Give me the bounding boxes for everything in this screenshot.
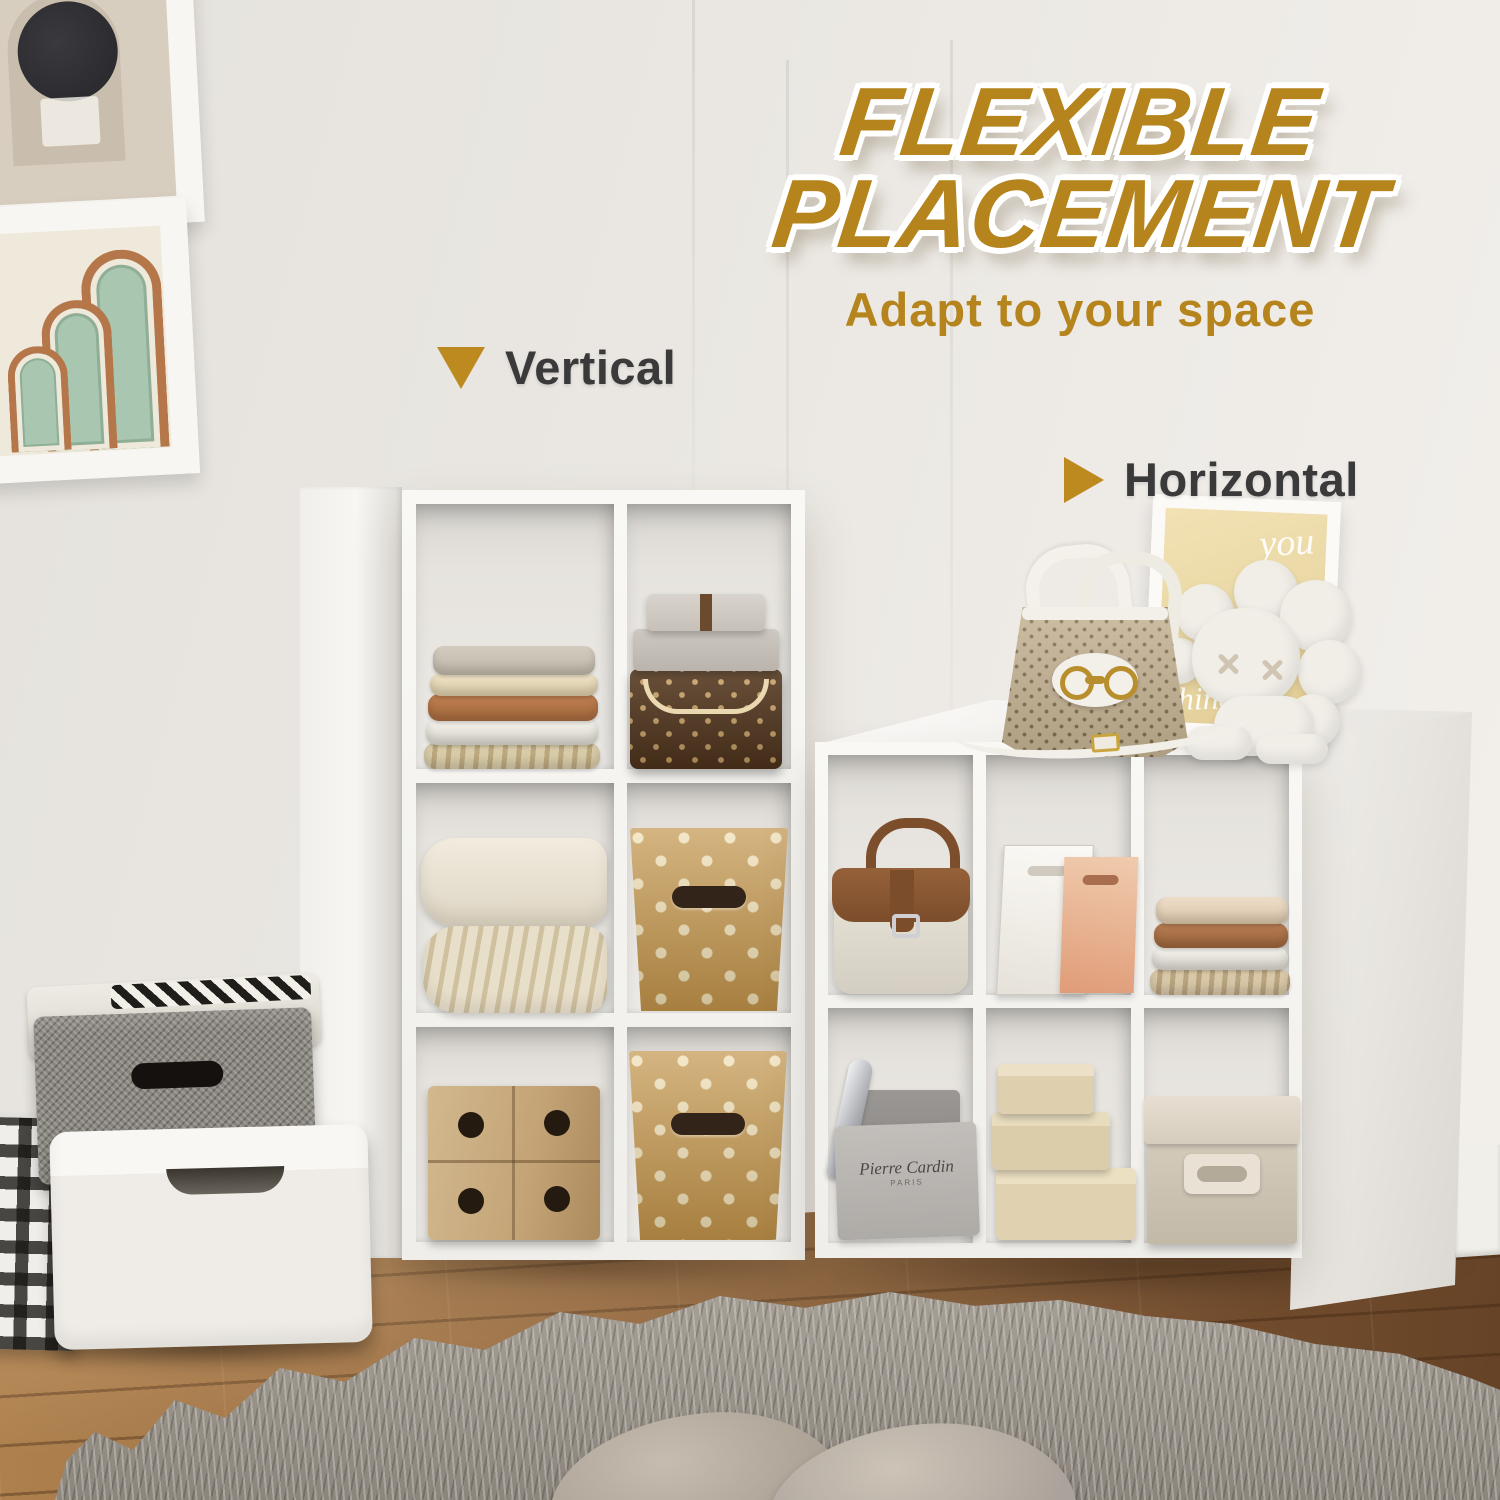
folded-clothes (424, 743, 600, 769)
folded-clothes (1152, 947, 1288, 970)
tote-handle-slot (1082, 875, 1118, 885)
folded-clothes (1154, 923, 1288, 948)
art-arch-small (6, 345, 71, 453)
satchel-handbag (832, 818, 970, 995)
box-handle-slot (1197, 1166, 1247, 1182)
wall-art-frame-bottom (0, 197, 200, 485)
vertical-label-text: Vertical (505, 340, 676, 395)
drawer-knob-hole (458, 1188, 484, 1214)
room-scene: Pierre Cardin PARIS you shine (0, 0, 1500, 1500)
plush-x-eye (1216, 652, 1240, 676)
folded-clothes (428, 694, 598, 721)
art-table-shape (40, 96, 100, 147)
horizontal-placement-label: Horizontal (1064, 452, 1359, 507)
folded-knit-blanket (423, 926, 607, 1013)
lidded-storage-box (1144, 1096, 1300, 1244)
headline-block: FLEXIBLE PLACEMENT Adapt to your space (690, 74, 1470, 337)
headline-line-1: FLEXIBLE (684, 74, 1476, 170)
monogram-box (630, 669, 782, 769)
triangle-right-icon (1064, 457, 1104, 503)
folded-clothes (430, 673, 598, 696)
art-mat (0, 0, 176, 206)
strap-buckle (1091, 733, 1120, 753)
triangle-down-icon (437, 347, 485, 389)
bin-handle (671, 1113, 745, 1135)
polka-dot-bin (630, 828, 788, 1011)
box-lid (1144, 1096, 1300, 1144)
folded-clothes (433, 646, 595, 675)
folded-clothes (1150, 969, 1290, 995)
monogram-box-handle (643, 679, 769, 714)
mini-drawer-chest (428, 1086, 600, 1240)
white-storage-bin (49, 1124, 373, 1350)
folded-blanket (421, 838, 607, 926)
drawer-knob-hole (544, 1110, 570, 1136)
blanket-houndstooth-band (110, 975, 311, 1009)
polka-dot-bin (629, 1051, 787, 1240)
drawer-divider (512, 1086, 515, 1240)
bin-handle-notch (166, 1166, 285, 1195)
folded-clothes (426, 719, 598, 745)
beige-box-small (998, 1064, 1094, 1114)
plush-leg (1256, 734, 1328, 764)
headline-line-2: PLACEMENT (684, 166, 1476, 262)
basket-handle-slot (131, 1060, 224, 1089)
horsebit-bar (1085, 676, 1105, 684)
beige-box-medium (992, 1112, 1110, 1170)
bin-handle (672, 886, 746, 908)
tote-handle-slot (1027, 866, 1068, 876)
horizontal-label-text: Horizontal (1124, 452, 1359, 507)
bag-buckle (892, 914, 920, 938)
art-mat (0, 226, 172, 457)
box-ribbon (700, 594, 712, 631)
bag-trim (1022, 607, 1168, 620)
folded-clothes (1156, 897, 1288, 924)
peach-tote-bag (1060, 857, 1139, 993)
drawer-knob-hole (458, 1112, 484, 1138)
drawer-knob-hole (544, 1186, 570, 1212)
beige-box-large (996, 1168, 1136, 1240)
vertical-placement-label: Vertical (437, 340, 676, 395)
pierre-cardin-box: Pierre Cardin PARIS (834, 1122, 980, 1241)
stacked-box (633, 629, 779, 671)
plush-x-eye (1260, 658, 1284, 682)
headline-subtitle: Adapt to your space (690, 282, 1470, 337)
